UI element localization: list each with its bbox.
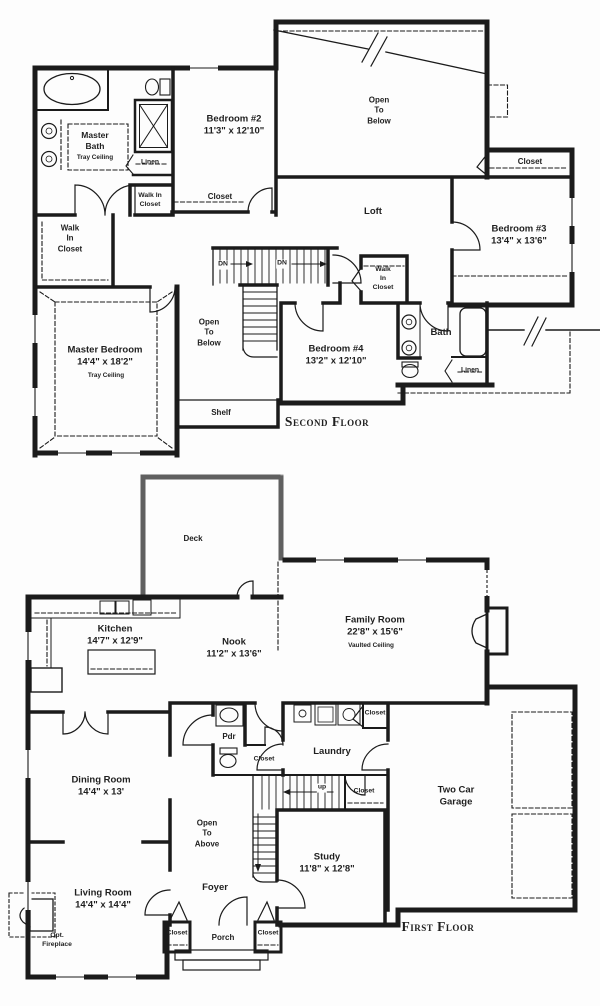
note-master-bath-ceiling: Tray Ceiling bbox=[77, 154, 113, 162]
label-opt-fireplace: Opt. Fireplace bbox=[42, 932, 72, 950]
label-closet-laundry-bottom: Closet bbox=[354, 788, 375, 797]
chimney-dashed-box bbox=[488, 85, 508, 117]
optional-fireplace bbox=[9, 893, 55, 937]
laundry-appliances bbox=[294, 704, 360, 725]
room-label-loft: Loft bbox=[364, 206, 382, 218]
second-floor-stairs bbox=[213, 248, 327, 357]
label-closet-top-right: Closet bbox=[518, 157, 542, 167]
floor-plan-sheet: Master Bath Tray Ceiling Bedroom #2 11'3… bbox=[0, 0, 600, 1006]
second-floor-title: Second Floor bbox=[285, 413, 369, 431]
label-closet-porch-right: Closet bbox=[258, 930, 279, 939]
label-walk-in-closet-left: Walk In Closet bbox=[58, 223, 82, 254]
label-open-to-below-top: Open To Below bbox=[367, 95, 391, 126]
label-shelf: Shelf bbox=[211, 408, 231, 418]
family-room-fireplace bbox=[472, 608, 507, 654]
room-label-family-room: Family Room 22'8" x 15'6" bbox=[345, 615, 405, 640]
label-stairs-dn-1: DN bbox=[217, 261, 229, 270]
label-walk-in-closet-right: Walk In Closet bbox=[373, 266, 394, 292]
kitchen-sink bbox=[100, 601, 115, 614]
deck-walls bbox=[143, 477, 281, 597]
master-sinks bbox=[42, 124, 57, 167]
label-stairs-up: up bbox=[317, 784, 327, 793]
label-pdr: Pdr bbox=[222, 732, 235, 742]
note-family-room-ceiling: Vaulted Ceiling bbox=[348, 642, 394, 650]
room-label-laundry: Laundry bbox=[313, 746, 350, 758]
garage-door-dashed bbox=[512, 712, 572, 808]
master-shower bbox=[135, 100, 172, 152]
master-bedroom-tray-ceiling bbox=[40, 292, 172, 448]
room-label-master-bedroom: Master Bedroom 14'4" x 18'2" bbox=[68, 345, 143, 370]
windows bbox=[25, 65, 576, 981]
master-toilet bbox=[146, 79, 171, 95]
room-label-garage: Two Car Garage bbox=[438, 785, 475, 810]
room-label-kitchen: Kitchen 14'7" x 12'9" bbox=[87, 624, 143, 649]
garage-door-dashed bbox=[512, 814, 572, 898]
room-label-bedroom4: Bedroom #4 13'2" x 12'10" bbox=[305, 344, 366, 369]
label-porch: Porch bbox=[212, 933, 235, 943]
porch-step bbox=[183, 960, 260, 970]
kitchen-island bbox=[88, 650, 155, 674]
label-deck: Deck bbox=[183, 534, 202, 544]
label-linen-hall-bath: Linen bbox=[461, 367, 479, 376]
label-linen-master: Linen bbox=[141, 159, 159, 168]
pdr-sink bbox=[220, 708, 238, 722]
room-label-living: Living Room 14'4" x 14'4" bbox=[74, 888, 132, 913]
label-closet-laundry-top: Closet bbox=[365, 710, 386, 719]
room-label-bedroom2: Bedroom #2 11'3" x 12'10" bbox=[204, 114, 265, 139]
room-label-bedroom3: Bedroom #3 13'4" x 13'6" bbox=[491, 224, 547, 249]
label-closet-porch-left: Closet bbox=[167, 930, 188, 939]
label-open-to-below-mid: Open To Below bbox=[197, 317, 221, 348]
pdr-toilet bbox=[220, 755, 236, 768]
first-floor-exterior-walls bbox=[28, 560, 575, 977]
label-walk-in-closet-small: Walk In Closet bbox=[138, 192, 162, 210]
stairs-down-run-arrow bbox=[255, 814, 261, 872]
label-closet-under-stair: Closet bbox=[254, 756, 275, 765]
second-floor-break-lines bbox=[274, 30, 600, 346]
master-tub bbox=[37, 68, 108, 110]
room-label-study: Study 11'8" x 12'8" bbox=[299, 852, 354, 877]
room-label-bath: Bath bbox=[430, 327, 451, 339]
note-master-bedroom-ceiling: Tray Ceiling bbox=[88, 372, 124, 380]
label-open-to-above: Open To Above bbox=[195, 818, 219, 849]
room-label-foyer: Foyer bbox=[202, 882, 228, 894]
label-bedroom2-closet: Closet bbox=[208, 192, 232, 202]
first-floor-title: First Floor bbox=[402, 918, 475, 936]
room-label-dining: Dining Room 14'4" x 13' bbox=[71, 775, 130, 800]
refrigerator bbox=[31, 668, 62, 692]
room-label-nook: Nook 11'2" x 13'6" bbox=[206, 637, 261, 662]
room-label-master-bath: Master Bath bbox=[81, 130, 108, 152]
label-stairs-dn-2: DN bbox=[276, 260, 288, 269]
kitchen-sink bbox=[116, 601, 129, 614]
